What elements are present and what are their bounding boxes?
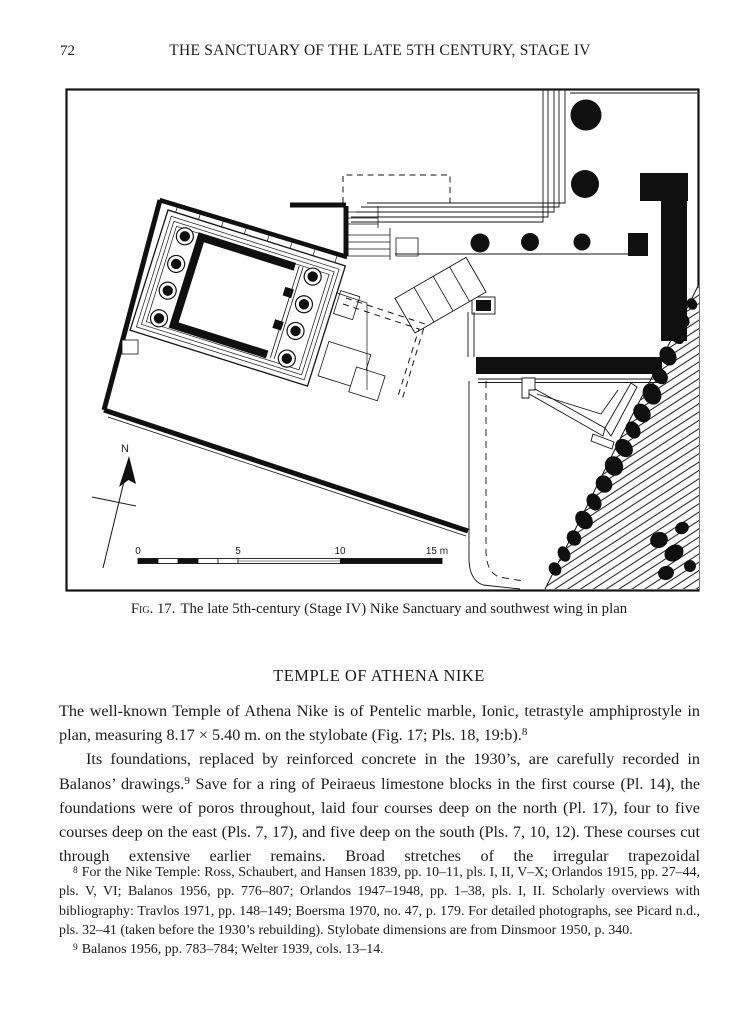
footnote-8: 8For the Nike Temple: Ross, Schaubert, a… bbox=[59, 863, 700, 940]
scale-tick-15m: 15 m bbox=[426, 546, 448, 557]
footnotes: 8For the Nike Temple: Ross, Schaubert, a… bbox=[59, 863, 700, 959]
figure-17-plan: N 0 5 10 15 m bbox=[65, 88, 700, 593]
paragraph-1: The well-known Temple of Athena Nike is … bbox=[59, 699, 700, 747]
book-page: 72 THE SANCTUARY OF THE LATE 5TH CENTURY… bbox=[0, 0, 755, 1024]
footnote-8-marker: 8 bbox=[73, 866, 82, 876]
figure-caption-text: The late 5th-century (Stage IV) Nike San… bbox=[181, 601, 628, 617]
paragraph-2: Its foundations, replaced by reinforced … bbox=[59, 747, 700, 868]
footnote-8-text: For the Nike Temple: Ross, Schaubert, an… bbox=[59, 865, 700, 938]
figure-caption-label: Fig. 17. bbox=[131, 601, 176, 617]
scale-tick-0: 0 bbox=[135, 546, 141, 557]
scale-tick-5: 5 bbox=[235, 546, 241, 557]
section-heading: TEMPLE OF ATHENA NIKE bbox=[58, 666, 700, 686]
page-number: 72 bbox=[60, 43, 75, 60]
footnote-9: 9Balanos 1956, pp. 783–784; Welter 1939,… bbox=[59, 940, 700, 959]
site-plan-figure: N 0 5 10 15 m bbox=[65, 88, 700, 593]
figure-caption: Fig. 17.The late 5th-century (Stage IV) … bbox=[58, 601, 700, 618]
running-header-title: THE SANCTUARY OF THE LATE 5TH CENTURY, S… bbox=[60, 42, 700, 60]
footnote-9-marker: 9 bbox=[73, 943, 82, 953]
north-label: N bbox=[121, 443, 129, 455]
running-head: 72 THE SANCTUARY OF THE LATE 5TH CENTURY… bbox=[60, 42, 700, 64]
footnote-ref-8: 8 bbox=[522, 726, 528, 738]
paragraph-1-text: The well-known Temple of Athena Nike is … bbox=[59, 702, 700, 744]
scale-tick-10: 10 bbox=[334, 546, 346, 557]
footnote-9-text: Balanos 1956, pp. 783–784; Welter 1939, … bbox=[82, 942, 384, 957]
body-text: The well-known Temple of Athena Nike is … bbox=[59, 699, 700, 868]
